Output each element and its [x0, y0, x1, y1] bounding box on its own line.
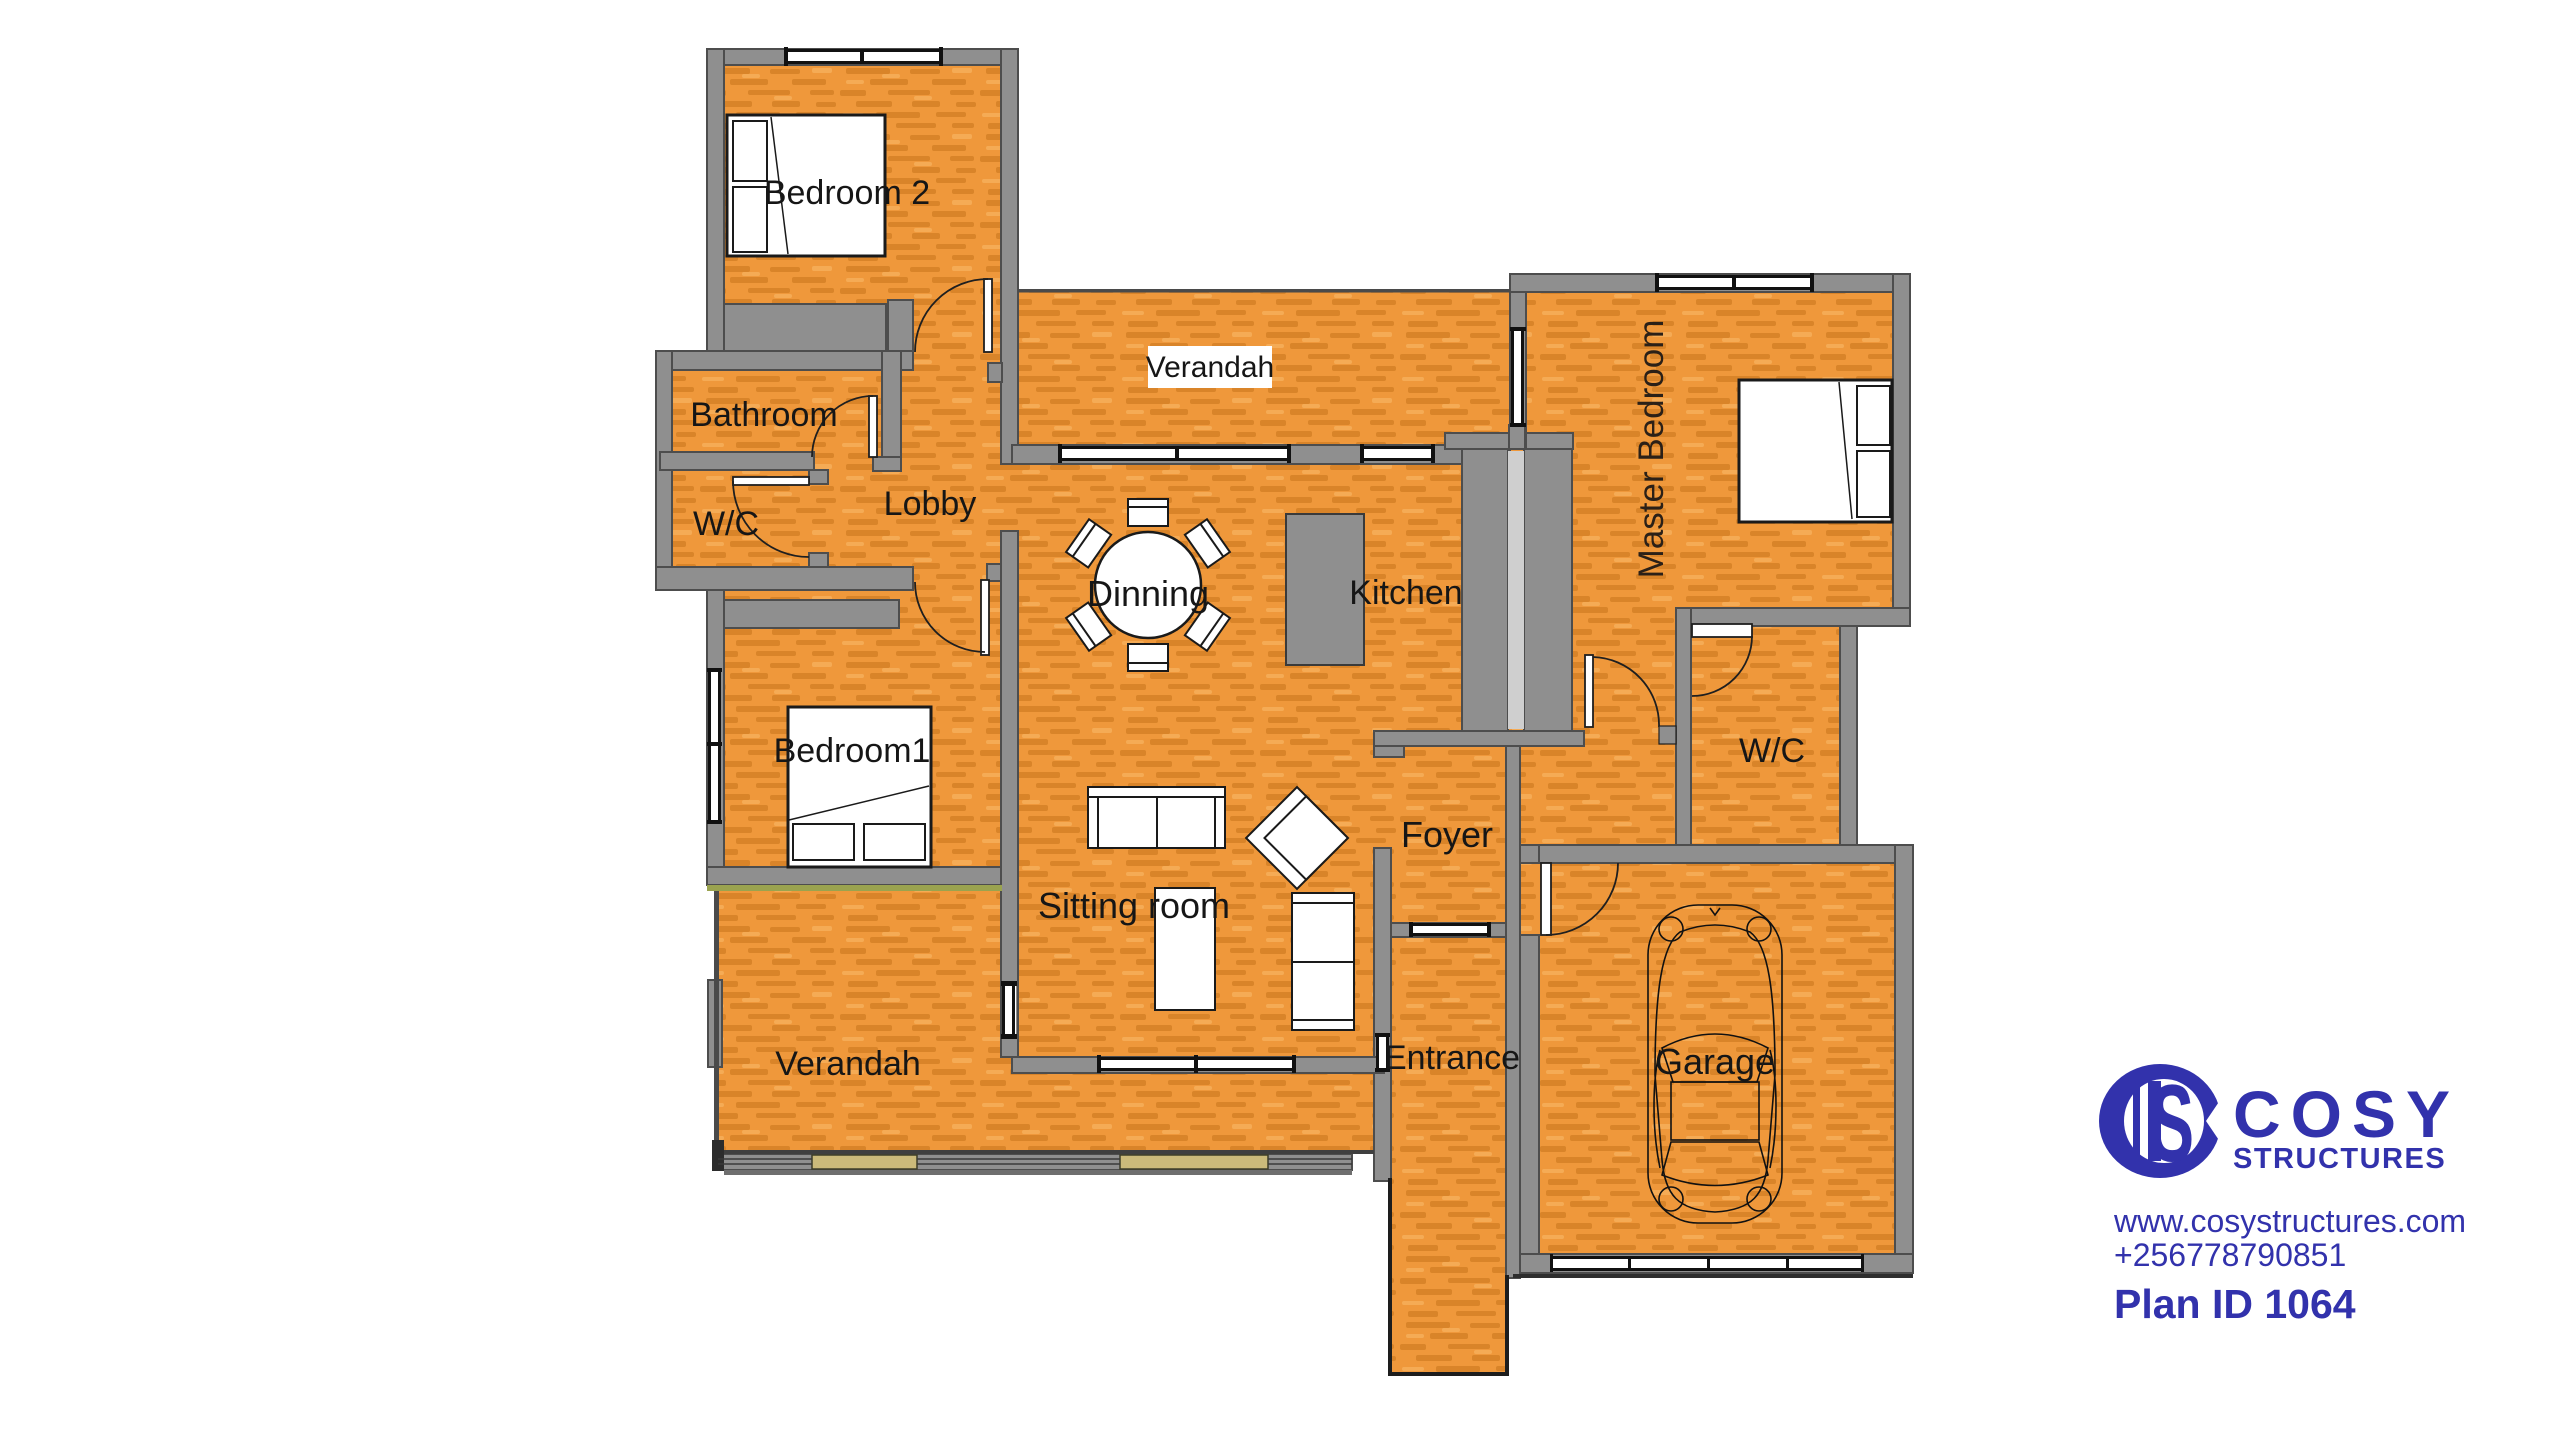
svg-text:Lobby: Lobby — [884, 485, 977, 523]
svg-text:Master Bedroom: Master Bedroom — [1632, 320, 1671, 579]
svg-text:Garage: Garage — [1655, 1041, 1775, 1082]
svg-text:Verandah: Verandah — [775, 1045, 921, 1083]
svg-text:Bedroom1: Bedroom1 — [774, 732, 931, 770]
svg-text:W/C: W/C — [693, 505, 759, 543]
svg-text:Kitchen: Kitchen — [1349, 574, 1462, 612]
svg-text:Bedroom 2: Bedroom 2 — [764, 174, 930, 212]
svg-text:+256778790851: +256778790851 — [2114, 1237, 2346, 1273]
svg-text:W/C: W/C — [1739, 732, 1805, 770]
svg-text:Entrance: Entrance — [1384, 1039, 1520, 1077]
svg-text:Plan ID 1064: Plan ID 1064 — [2114, 1281, 2356, 1327]
svg-text:S: S — [2150, 1063, 2194, 1185]
svg-text:Foyer: Foyer — [1401, 814, 1493, 855]
svg-text:COSY: COSY — [2233, 1077, 2460, 1151]
svg-text:STRUCTURES: STRUCTURES — [2233, 1143, 2446, 1175]
svg-text:Bathroom: Bathroom — [690, 396, 837, 434]
svg-text:Sitting room: Sitting room — [1038, 885, 1230, 926]
svg-text:www.cosystructures.com: www.cosystructures.com — [2113, 1203, 2466, 1239]
svg-text:Dinning: Dinning — [1087, 573, 1209, 614]
svg-text:Verandah: Verandah — [1146, 351, 1274, 384]
